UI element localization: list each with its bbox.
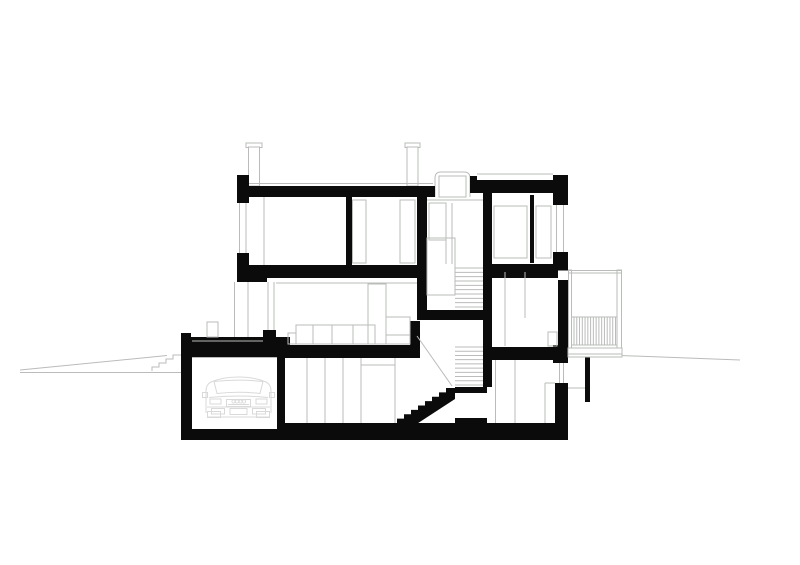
basement-mid-room [285,358,405,423]
chimney-left-body [249,147,260,186]
lower-landing-room [455,393,487,418]
lower-landing-slab [455,387,487,393]
basement-right-room [492,360,553,423]
thin-partition [530,195,534,263]
interior-wall-a [346,195,352,265]
left-roof-parapet [237,175,249,203]
right-window-sill [553,252,568,270]
stair-balustrade [427,238,455,295]
right-step-block [553,345,568,363]
middle-slab-left [267,345,412,358]
site-post [585,357,590,402]
right-wall-notch [558,271,568,280]
top-slab-edge-left [237,265,267,282]
architectural-section-drawing [0,0,800,565]
left-window-sill [237,253,249,267]
right-wall-middle [558,280,568,347]
right-lower-wall [555,383,568,428]
skylight-right-jamb [470,176,477,193]
top-floor-slab-left [267,265,418,278]
left-roof-slab [249,186,435,197]
page [0,0,800,565]
stair-step-block [410,321,420,358]
balcony-floor [568,348,622,357]
garage-right-wall [277,357,285,429]
right-roof-parapet [553,175,568,205]
interior-wall-b [417,195,427,320]
half-landing-slab [417,310,483,320]
chimney-right-body [407,147,418,186]
